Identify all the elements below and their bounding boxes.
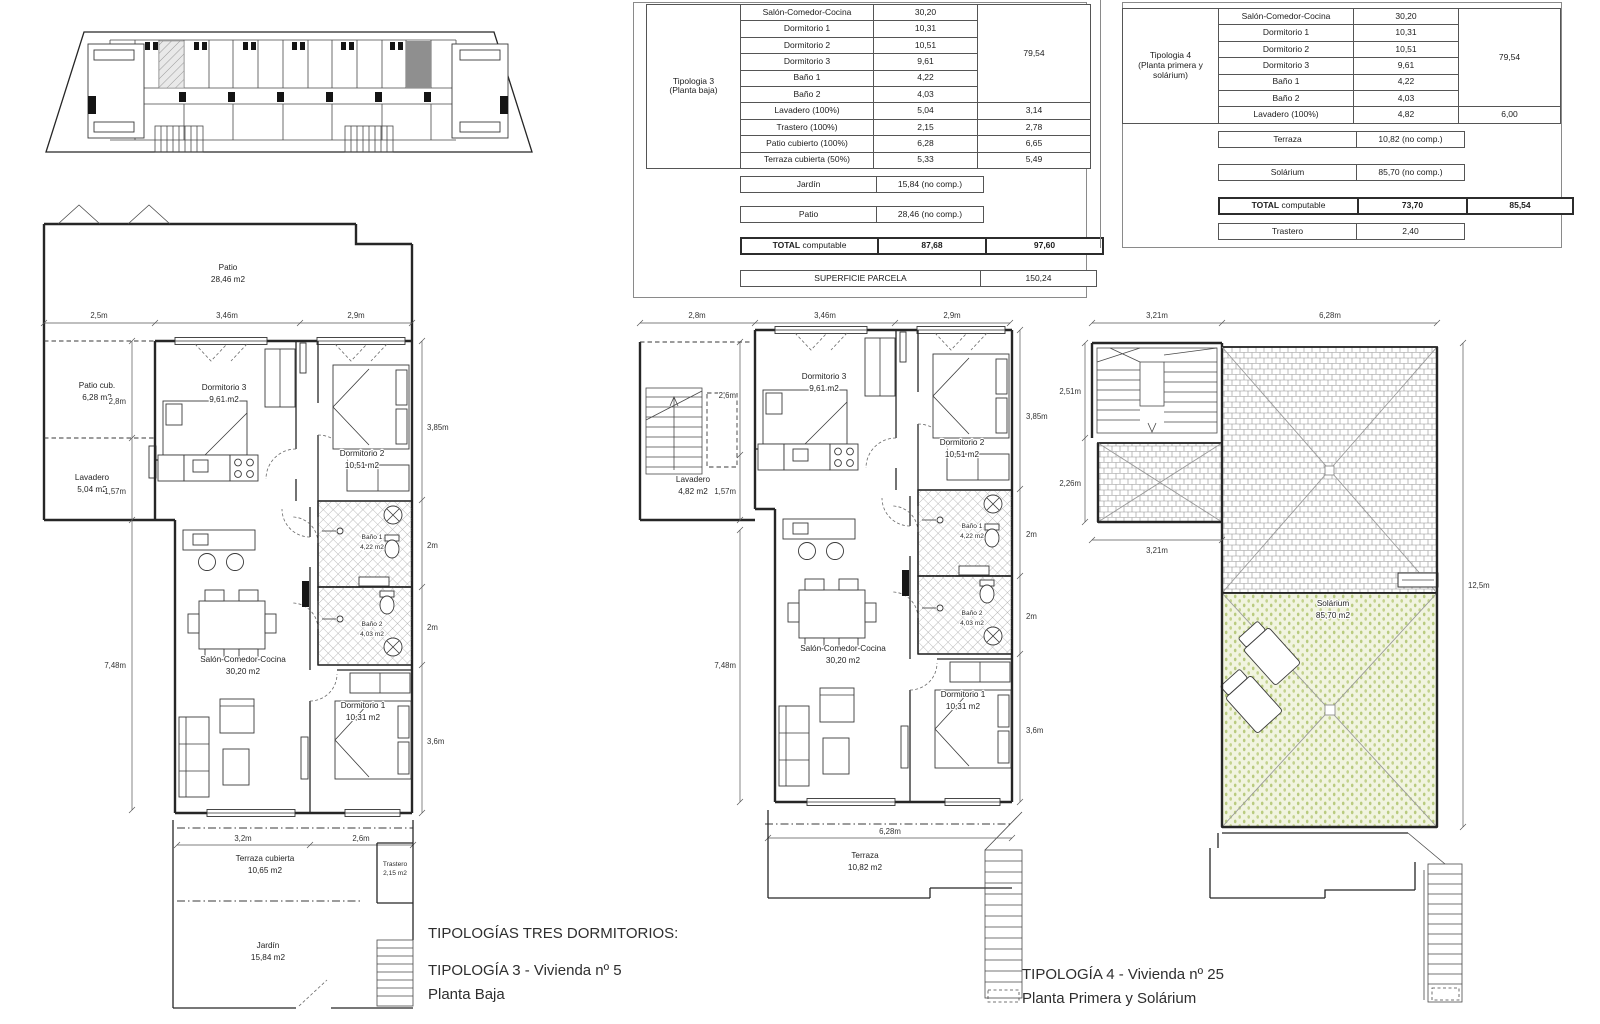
t3-table-label: Tipologia 3(Planta baja) [647, 5, 741, 169]
t3-jardin-area: 15,84 m2 [251, 953, 286, 962]
t3-lavadero-area: 5,04 m2 [77, 485, 107, 494]
t3-row-value2: 3,14 [978, 103, 1091, 119]
t3-row-value2: 2,78 [978, 119, 1091, 135]
t3-row-value: 10,51 [874, 37, 978, 53]
dwelling-unit-t4 [755, 327, 1012, 806]
t3-row-name: Dormitorio 2 [741, 37, 874, 53]
t4b-dim-left1: 2,51m [1059, 387, 1081, 396]
t4a-dim-bot1: 6,28m [879, 827, 901, 836]
t3-row-value: 9,61 [874, 54, 978, 70]
site-key-plan [46, 32, 532, 152]
t4-row-name: Salón-Comedor-Cocina [1219, 9, 1354, 25]
t4a-bano2-label: Baño 2 [962, 610, 983, 617]
areas-table-t4: Tipologia 4(Planta primera ysolárium) Sa… [1122, 8, 1561, 124]
trastero-table-t4: Trastero 2,40 [1218, 223, 1465, 240]
trastero-name: Trastero [1219, 224, 1357, 240]
t3-row-name: Salón-Comedor-Cocina [741, 5, 874, 21]
t4-row-value2: 6,00 [1459, 107, 1561, 123]
solarium-table-t4: Solárium 85,70 (no comp.) [1218, 164, 1465, 181]
t3-dim-right1: 3,85m [427, 423, 449, 432]
floor-plan-tipologia-3: Patio 28,46 m2 2,5m 3,46m 2,9m Patio cub… [41, 205, 449, 1008]
t3-row-value: 5,33 [874, 152, 978, 168]
t3-dim-right4: 3,6m [427, 737, 444, 746]
t3-row-name: Dormitorio 1 [741, 21, 874, 37]
t4-row-value: 10,51 [1354, 41, 1459, 57]
t3-dorm1-label: Dormitorio 1 [341, 701, 386, 710]
t3-dorm3-label: Dormitorio 3 [202, 383, 247, 392]
total-label: TOTAL computable [1219, 198, 1358, 214]
t4a-terraza-label: Terraza [851, 851, 879, 860]
t4b-stairwell [1097, 348, 1217, 433]
t4-merged-subtotal: 79,54 [1459, 9, 1561, 107]
t3-row-value: 5,04 [874, 103, 978, 119]
t4a-dim-right2: 2m [1026, 530, 1037, 539]
t3-row-value: 2,15 [874, 119, 978, 135]
floor-plan-tipologia-4-planta-primera: 2,8m 3,46m 2,9m 2,6m Lavadero 4,82 m2 1,… [637, 311, 1048, 1002]
t4-plan-title: TIPOLOGÍA 4 - Vivienda nº 25 [1022, 966, 1224, 983]
t4b-dim-right1: 12,5m [1468, 581, 1490, 590]
t4a-bano2-area: 4,03 m2 [960, 620, 984, 627]
table-frame-t4-outer [1100, 0, 1101, 248]
t3-terraza-area: 10,65 m2 [248, 866, 283, 875]
t4b-dim-left3: 3,21m [1146, 546, 1168, 555]
total-value: 73,70 [1358, 198, 1467, 214]
t4a-dim-right4: 3,6m [1026, 726, 1043, 735]
t4-table-label: Tipologia 4(Planta primera ysolárium) [1123, 9, 1219, 124]
t4b-solarium-label: Solárium [1317, 599, 1349, 608]
t3-row-value: 6,28 [874, 136, 978, 152]
terraza-name: Terraza [1219, 132, 1357, 148]
t4b-dim-top2: 6,28m [1319, 311, 1341, 320]
t3-salon-label: Salón-Comedor-Cocina [200, 655, 286, 664]
t3-row-name: Baño 1 [741, 70, 874, 86]
t3-dim-bot2: 2,6m [352, 834, 369, 843]
t3-bano2-area: 4,03 m2 [360, 631, 384, 638]
t4-row-name: Dormitorio 3 [1219, 58, 1354, 74]
t3-dim-right2: 2m [427, 541, 438, 550]
t3-row-value: 10,31 [874, 21, 978, 37]
t3-row-value2: 5,49 [978, 152, 1091, 168]
t4b-dim-top1: 3,21m [1146, 311, 1168, 320]
t4b-solarium-area: 85,70 m2 [1316, 611, 1351, 620]
t4a-dim-left2: 1,57m [714, 487, 736, 496]
drawing-sheet: Patio 28,46 m2 2,5m 3,46m 2,9m Patio cub… [0, 0, 1600, 1024]
total-value2: 85,54 [1467, 198, 1573, 214]
t4a-dim-right3: 2m [1026, 612, 1037, 621]
t3-patio-label: Patio [219, 263, 238, 272]
t4-row-name: Baño 1 [1219, 74, 1354, 90]
t4a-dorm1-area: 10,31 m2 [946, 702, 981, 711]
t3-row-value: 30,20 [874, 5, 978, 21]
site-highlight-unit5 [159, 41, 184, 88]
t4a-dim-top3: 2,9m [943, 311, 960, 320]
t4-row-value: 4,03 [1354, 90, 1459, 106]
t4a-terraza-area: 10,82 m2 [848, 863, 883, 872]
t4a-dim-top1: 2,8m [688, 311, 705, 320]
t3-row-name: Trastero (100%) [741, 119, 874, 135]
terraza-table-t4: Terraza 10,82 (no comp.) [1218, 131, 1465, 148]
jardin-name: Jardín [741, 177, 877, 193]
t3-garden-stairs [377, 940, 413, 1006]
t4a-salon-label: Salón-Comedor-Cocina [800, 644, 886, 653]
total-table-t4: TOTAL computable 73,70 85,54 [1218, 197, 1574, 215]
jardin-value: 15,84 (no comp.) [877, 177, 984, 193]
t3-dorm2-area: 10,51 m2 [345, 461, 380, 470]
t3-plan-subtitle: Planta Baja [428, 986, 505, 1003]
t3-merged-subtotal: 79,54 [978, 5, 1091, 103]
t3-row-name: Lavadero (100%) [741, 103, 874, 119]
t3-dim-top3: 2,9m [347, 311, 364, 320]
t3-patiocub-label: Patio cub. [79, 381, 115, 390]
t3-dim-left3: 7,48m [104, 661, 126, 670]
areas-table-t3: Tipologia 3(Planta baja) Salón-Comedor-C… [646, 4, 1091, 169]
t4a-bano1-area: 4,22 m2 [960, 533, 984, 540]
dwelling-unit-t3 [155, 338, 412, 817]
t4b-external-stairs [1424, 864, 1462, 1002]
floor-plan-tipologia-4-solarium: 3,21m 6,28m 2,51m 2,26m 3,21m 12,5m Solá… [1059, 311, 1489, 1002]
t3-dim-left2: 1,57m [104, 487, 126, 496]
t4-row-name: Lavadero (100%) [1219, 107, 1354, 123]
t3-lavadero-label: Lavadero [75, 473, 110, 482]
t4a-dim-left3: 7,48m [714, 661, 736, 670]
t4a-lavadero-area: 4,82 m2 [678, 487, 708, 496]
t3-dorm2-label: Dormitorio 2 [340, 449, 385, 458]
site-stairs [155, 126, 393, 152]
jardin-table-t3: Jardín 15,84 (no comp.) [740, 176, 984, 193]
t4b-dim-left2: 2,26m [1059, 479, 1081, 488]
t4-row-value: 9,61 [1354, 58, 1459, 74]
t4a-dorm2-label: Dormitorio 2 [940, 438, 985, 447]
site-end-blocks [88, 44, 508, 138]
t3-dim-bot1: 3,2m [234, 834, 251, 843]
t3-dim-top2: 3,46m [216, 311, 238, 320]
parcela-value: 150,24 [981, 271, 1097, 287]
patio-name: Patio [741, 207, 877, 223]
t3-dorm1-area: 10,31 m2 [346, 713, 381, 722]
t3-row-name: Baño 2 [741, 86, 874, 102]
parcela-name: SUPERFICIE PARCELA [741, 271, 981, 287]
t3-row-value2: 6,65 [978, 136, 1091, 152]
t3-bano1-label: Baño 1 [362, 534, 383, 541]
total-value2: 97,60 [986, 238, 1103, 254]
t4-row-value: 30,20 [1354, 9, 1459, 25]
t3-dim-right3: 2m [427, 623, 438, 632]
t3-dorm3-area: 9,61 m2 [209, 395, 239, 404]
t3-trastero-area: 2,15 m2 [383, 870, 407, 877]
t4a-bano1-label: Baño 1 [962, 523, 983, 530]
patio-value: 28,46 (no comp.) [877, 207, 984, 223]
solarium-value: 85,70 (no comp.) [1357, 165, 1465, 181]
total-table-t3: TOTAL computable 87,68 97,60 [740, 237, 1104, 255]
t3-dim-top1: 2,5m [90, 311, 107, 320]
t4a-dorm1-label: Dormitorio 1 [941, 690, 986, 699]
t4a-dim-top2: 3,46m [814, 311, 836, 320]
t4-row-value: 4,22 [1354, 74, 1459, 90]
group-title: TIPOLOGÍAS TRES DORMITORIOS: [428, 925, 678, 942]
patio-table-t3: Patio 28,46 (no comp.) [740, 206, 984, 223]
t4-row-value: 4,82 [1354, 107, 1459, 123]
t3-bano2-label: Baño 2 [362, 621, 383, 628]
t4-row-name: Baño 2 [1219, 90, 1354, 106]
t4a-external-stairs [985, 812, 1022, 1002]
t3-patio-area: 28,46 m2 [211, 275, 246, 284]
t3-row-name: Patio cubierto (100%) [741, 136, 874, 152]
t3-dim-left1: 2,8m [109, 397, 126, 406]
t4a-dorm3-area: 9,61 m2 [809, 384, 839, 393]
t4a-interior-stairs [646, 388, 702, 474]
t4a-dim-right1: 3,85m [1026, 412, 1048, 421]
t3-salon-area: 30,20 m2 [226, 667, 261, 676]
t4a-dorm3-label: Dormitorio 3 [802, 372, 847, 381]
parcela-table-t3: SUPERFICIE PARCELA 150,24 [740, 270, 1097, 287]
site-highlight-unit25 [406, 41, 431, 88]
t4-row-value: 10,31 [1354, 25, 1459, 41]
t4-row-name: Dormitorio 2 [1219, 41, 1354, 57]
t3-plan-title: TIPOLOGÍA 3 - Vivienda nº 5 [428, 962, 622, 979]
solarium-name: Solárium [1219, 165, 1357, 181]
t4a-dorm2-area: 10,51 m2 [945, 450, 980, 459]
terraza-value: 10,82 (no comp.) [1357, 132, 1465, 148]
t4a-lavadero-label: Lavadero [676, 475, 711, 484]
total-value: 87,68 [878, 238, 986, 254]
t4-plan-subtitle: Planta Primera y Solárium [1022, 990, 1196, 1007]
t3-trastero-label: Trastero [383, 861, 408, 868]
t3-row-name: Terraza cubierta (50%) [741, 152, 874, 168]
total-label: TOTAL computable [741, 238, 878, 254]
t3-terraza-label: Terraza cubierta [236, 854, 295, 863]
t3-row-value: 4,22 [874, 70, 978, 86]
t3-row-name: Dormitorio 3 [741, 54, 874, 70]
t4a-salon-area: 30,20 m2 [826, 656, 861, 665]
t3-bano1-area: 4,22 m2 [360, 544, 384, 551]
trastero-value: 2,40 [1357, 224, 1465, 240]
t3-row-value: 4,03 [874, 86, 978, 102]
t4-row-name: Dormitorio 1 [1219, 25, 1354, 41]
t4a-dim-left1: 2,6m [719, 391, 736, 400]
t3-jardin-label: Jardín [257, 941, 280, 950]
